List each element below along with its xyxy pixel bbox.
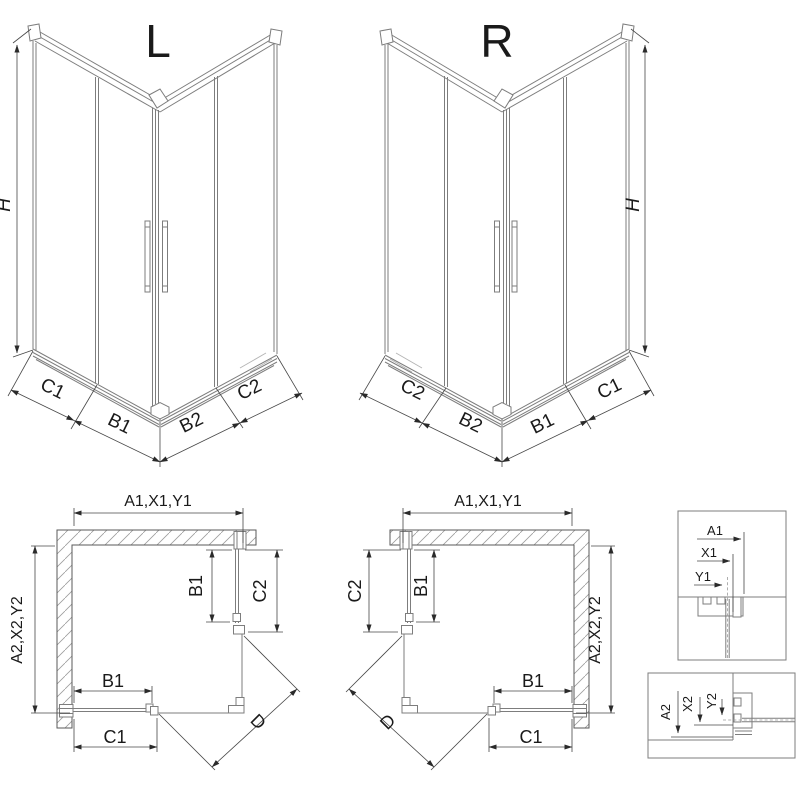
plan-left-dim-b1-vertical: B1 — [186, 575, 206, 597]
shower-enclosure-technical-drawing: L H C1 B1 B2 C2 R H C2 B2 B1 C1 A1,X1,Y1… — [0, 0, 800, 800]
iso-right-dim-c2: C2 — [397, 375, 428, 405]
technical-drawing-page: L H C1 B1 B2 C2 R H C2 B2 B1 C1 A1,X1,Y1… — [0, 0, 800, 800]
plan-right-dim-d: D — [376, 710, 399, 733]
plan-view-right: A1,X1,Y1 A2,X2,Y2 B1 C2 B1 C1 D — [345, 493, 615, 770]
detail-view-top: A1 X1 Y1 — [678, 511, 786, 660]
detail-bottom-dim-y2: Y2 — [704, 693, 719, 709]
iso-left-dim-b2: B2 — [177, 409, 207, 438]
wall-hatching-left-plan — [57, 530, 256, 728]
plan-left-dim-b1-horizontal: B1 — [102, 671, 124, 691]
detail-top-dim-x1: X1 — [701, 545, 717, 560]
plan-right-dim-c1: C1 — [519, 727, 542, 747]
iso-view-right: R H C2 B2 B1 C1 — [359, 15, 654, 467]
plan-left-dim-c2: C2 — [250, 579, 270, 602]
iso-left-dim-b1: B1 — [104, 410, 134, 439]
plan-right-dim-a2x2y2: A2,X2,Y2 — [587, 596, 604, 664]
iso-right-dim-h: H — [623, 198, 644, 212]
plan-view-left: A1,X1,Y1 A2,X2,Y2 B1 C2 B1 C1 D — [9, 493, 300, 770]
detail-top-dim-y1: Y1 — [695, 569, 711, 584]
plan-right-dim-b1-vertical: B1 — [411, 575, 431, 597]
iso-left-dim-c1: C1 — [37, 374, 68, 404]
detail-bottom-dim-a2: A2 — [658, 704, 673, 720]
iso-right-dim-c1: C1 — [594, 374, 625, 404]
wall-hatching-right-plan — [390, 530, 589, 728]
iso-left-title: L — [145, 15, 171, 67]
wall-profile-section-bottom — [723, 693, 795, 735]
iso-right-title: R — [480, 15, 513, 67]
detail-top-dim-a1: A1 — [707, 523, 723, 538]
plan-right-dim-a1x1y1: A1,X1,Y1 — [454, 493, 522, 510]
plan-right-dim-c2: C2 — [345, 579, 365, 602]
iso-left-dim-h: H — [0, 198, 15, 212]
iso-view-left: L H C1 B1 B2 C2 — [0, 15, 303, 467]
plan-left-dim-a2x2y2: A2,X2,Y2 — [9, 596, 26, 664]
plan-right-dim-b1-horizontal: B1 — [522, 671, 544, 691]
plan-left-dim-c1: C1 — [103, 727, 126, 747]
iso-right-dim-b2: B2 — [455, 409, 485, 438]
detail-view-bottom: A2 X2 Y2 — [648, 673, 795, 758]
detail-bottom-dim-x2: X2 — [680, 696, 695, 712]
iso-left-dim-c2: C2 — [234, 375, 265, 405]
plan-left-dim-a1x1y1: A1,X1,Y1 — [124, 493, 192, 510]
wall-profile-section-top — [698, 577, 743, 658]
plan-left-dim-d: D — [247, 710, 270, 733]
iso-right-dim-b1: B1 — [528, 410, 558, 439]
